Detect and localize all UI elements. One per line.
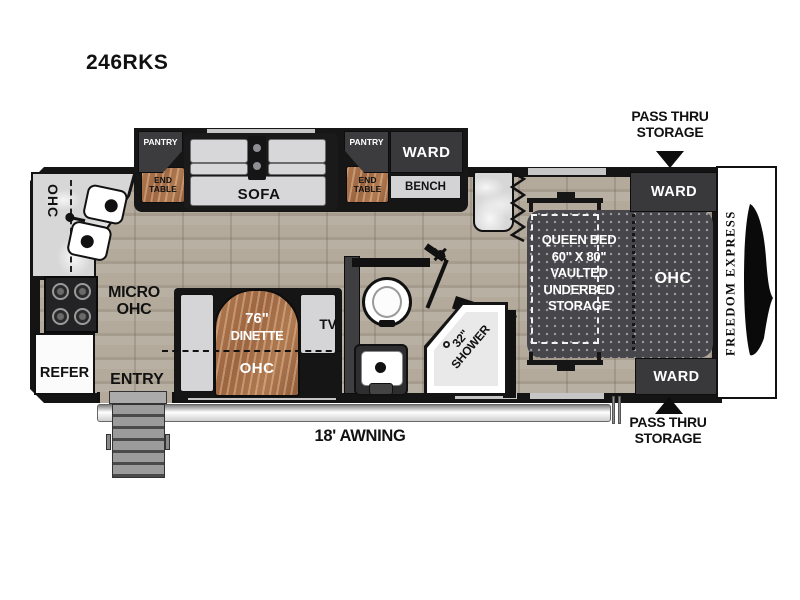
pass-thru-top-line2: STORAGE (600, 125, 740, 141)
wardrobe-mid: WARD (390, 131, 463, 173)
brand-logo: FREEDOM EXPRESS (722, 176, 740, 391)
entry-step-platform (109, 391, 167, 404)
step-rail (165, 434, 170, 450)
dinette-ohc-label: OHC (226, 361, 288, 377)
micro-line1: MICRO (96, 285, 172, 302)
cupholder-icon (253, 144, 261, 152)
bedroom-dresser (473, 171, 514, 232)
pass-thru-top-line1: PASS THRU (600, 109, 740, 125)
bath-sink (354, 344, 408, 396)
pass-thru-top-label: PASS THRU STORAGE (600, 109, 740, 140)
bedroom-console-top (527, 198, 603, 203)
toilet-bowl (372, 286, 402, 318)
console-leg (597, 352, 601, 361)
sink-drain-icon (80, 234, 95, 249)
burner-icon (52, 283, 69, 300)
bathroom-wall (352, 258, 430, 267)
burner-icon (52, 308, 69, 325)
sink-drain-icon (375, 362, 386, 373)
micro-ohc-label: MICRO OHC (96, 285, 172, 319)
bed-line1: QUEEN BED (523, 232, 635, 249)
tv-label: TV (314, 318, 342, 333)
sofa-cushion (268, 139, 326, 163)
entry-label: ENTRY (102, 371, 172, 388)
front-cap-graphic (740, 200, 774, 360)
arrow-down-icon (656, 151, 684, 168)
model-title: 246RKS (86, 52, 168, 75)
step-rail (106, 434, 111, 450)
console-leg (529, 352, 533, 361)
awning-bar (97, 404, 611, 422)
burner-icon (74, 308, 91, 325)
console-tab (557, 365, 575, 371)
sofa-cushion (268, 163, 326, 175)
awning-label: 18' AWNING (300, 428, 420, 446)
bed-label: QUEEN BED 60" X 80" VAULTED UNDERBED STO… (523, 232, 635, 315)
sofa-cushion (190, 163, 248, 175)
bench: BENCH (390, 175, 461, 199)
console-tab (557, 192, 575, 198)
sink-bowl (66, 220, 113, 263)
refrigerator: REFER (34, 333, 95, 395)
sofa-label: SOFA (214, 187, 304, 203)
arrow-up-icon (655, 397, 683, 414)
burner-icon (74, 283, 91, 300)
dinette-size-label: 76" (224, 311, 290, 327)
sofa-cushion (190, 139, 248, 163)
bed-line2: 60" X 80" (523, 249, 635, 266)
pass-thru-bottom-label: PASS THRU STORAGE (598, 415, 738, 446)
dinette-ohc-boundary (162, 350, 342, 352)
bed-line4: UNDERBED (523, 282, 635, 299)
pass-thru-bottom-line1: PASS THRU (598, 415, 738, 431)
console-leg (529, 203, 533, 212)
front-compartment: FREEDOM EXPRESS (716, 166, 777, 399)
bed-ohc-label: OHC (633, 270, 713, 287)
bed-line3: VAULTED (523, 265, 635, 282)
window-bedroom-top (528, 168, 606, 175)
sink-drain-icon (103, 198, 118, 213)
floorplan-246rks: 246RKS END TABLE PANTRY END TABLE PANTRY… (0, 0, 800, 600)
toilet-hinge (379, 320, 395, 327)
kitchen-ohc-label: OHC (44, 184, 61, 238)
entry-steps (112, 404, 165, 478)
dinette-label: DINETTE (218, 329, 296, 343)
pass-thru-bottom-line2: STORAGE (598, 431, 738, 447)
dinette-bench-left (180, 294, 214, 392)
window-bedroom-bottom (530, 393, 604, 399)
wardrobe-front-top: WARD (630, 172, 718, 212)
cooktop (44, 276, 98, 333)
bed-line5: STORAGE (523, 298, 635, 315)
micro-line2: OHC (96, 302, 172, 319)
cupholder-icon (253, 162, 261, 170)
sink-bowl (82, 183, 129, 226)
wardrobe-front-bottom: WARD (635, 358, 718, 395)
sofa-console (248, 136, 266, 180)
faucet-icon (369, 383, 393, 395)
